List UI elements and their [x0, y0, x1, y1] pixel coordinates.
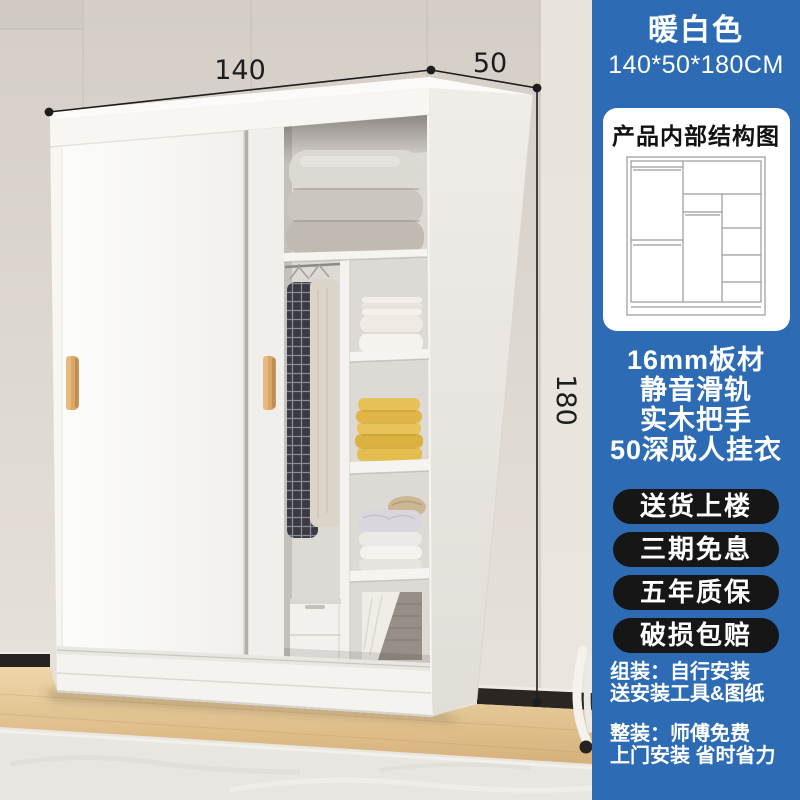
hanging-shirt [310, 279, 339, 527]
wardrobe-structure-diagram [626, 156, 766, 316]
service-badge-damage: 破损包赔 [613, 618, 779, 653]
note-line: 整装：师傅免费 [610, 723, 800, 745]
yellow-clothes-stack [355, 398, 423, 461]
product-photo: 140 50 180 [0, 0, 592, 800]
caster-wheel [580, 741, 593, 754]
open-compartment [284, 115, 430, 663]
door-handle [66, 356, 79, 410]
variant-color-label: 暖白色 [592, 0, 800, 48]
feature-item: 静音滑轨 [592, 375, 800, 405]
note-line: 送安装工具&图纸 [610, 683, 800, 705]
folded-duvets [286, 150, 424, 254]
sliding-doors [62, 127, 284, 657]
feature-item: 50深成人挂衣 [592, 435, 800, 465]
left-sliding-door [62, 131, 244, 657]
self-assembly-note: 组装：自行安装 送安装工具&图纸 [610, 661, 800, 705]
service-badge-delivery: 送货上楼 [613, 489, 779, 524]
service-badge-installment: 三期免息 [613, 532, 779, 567]
feature-item: 实木把手 [592, 405, 800, 435]
blanket-basket [362, 592, 422, 660]
divider-board [340, 260, 350, 660]
product-infographic: 140 50 180 暖白色 140*50*180CM 产品内部结构图 [0, 0, 800, 800]
note-line: 上门安装 省时省力 [610, 745, 800, 767]
white-linen-stack [359, 297, 423, 353]
service-badges: 送货上楼 三期免息 五年质保 破损包赔 [592, 489, 800, 653]
dimension-width-label: 140 [214, 55, 266, 86]
structure-card-title: 产品内部结构图 [603, 117, 790, 151]
service-badge-warranty: 五年质保 [613, 575, 779, 610]
hanging-section [285, 264, 341, 660]
assembly-notes: 组装：自行安装 送安装工具&图纸 整装：师傅免费 上门安装 省时省力 [592, 661, 800, 767]
note-line: 组装：自行安装 [610, 661, 800, 683]
feature-item: 16mm板材 [592, 345, 800, 375]
feature-list: 16mm板材 静音滑轨 实木把手 50深成人挂衣 [592, 345, 800, 465]
variant-size-label: 140*50*180CM [592, 51, 800, 79]
dimension-height-label: 180 [550, 374, 581, 426]
full-assembly-note: 整装：师傅免费 上门安装 省时省力 [610, 723, 800, 767]
wardrobe [48, 77, 533, 717]
info-sidebar: 暖白色 140*50*180CM 产品内部结构图 [592, 0, 800, 800]
dimension-depth-label: 50 [473, 48, 507, 79]
structure-card: 产品内部结构图 [603, 108, 790, 331]
door-handle [263, 356, 276, 410]
